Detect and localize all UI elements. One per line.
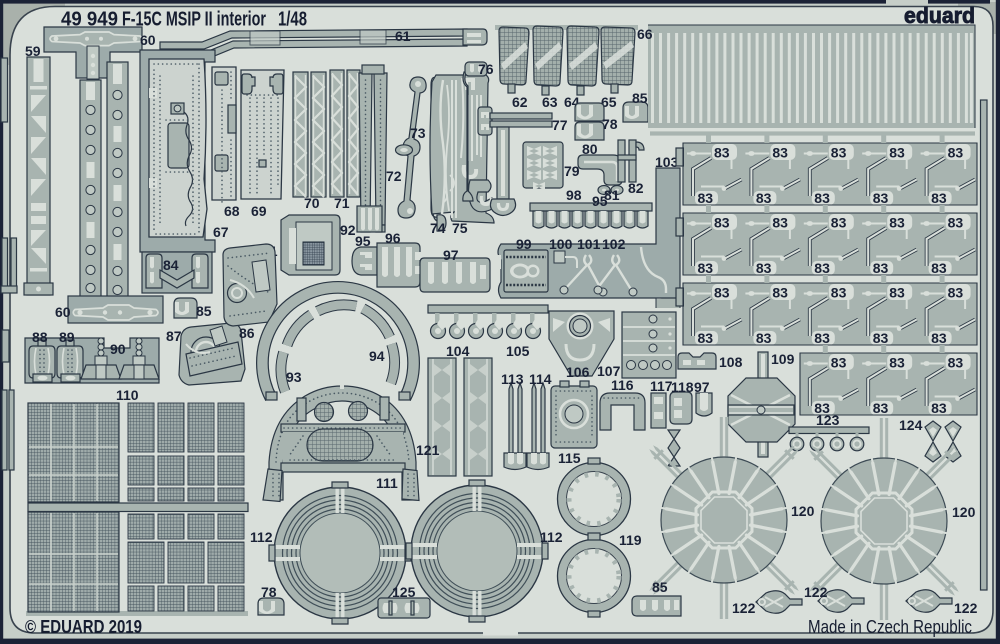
svg-text:102: 102 — [602, 236, 626, 252]
svg-text:60: 60 — [140, 32, 156, 48]
svg-text:69: 69 — [251, 203, 267, 219]
svg-text:105: 105 — [506, 343, 530, 359]
svg-text:76: 76 — [478, 61, 494, 77]
svg-text:111: 111 — [376, 475, 398, 491]
svg-text:Made in Czech Republic: Made in Czech Republic — [808, 617, 972, 637]
svg-text:106: 106 — [566, 364, 590, 380]
svg-text:92: 92 — [340, 222, 356, 238]
svg-text:72: 72 — [386, 168, 402, 184]
svg-text:82: 82 — [628, 180, 644, 196]
svg-text:122: 122 — [954, 600, 978, 616]
svg-text:115: 115 — [558, 450, 581, 466]
svg-text:121: 121 — [416, 442, 440, 458]
svg-text:123: 123 — [816, 412, 840, 428]
svg-text:98: 98 — [566, 187, 582, 203]
svg-text:80: 80 — [582, 141, 598, 157]
svg-text:77: 77 — [552, 117, 568, 133]
svg-text:85: 85 — [652, 579, 668, 595]
svg-text:79: 79 — [564, 163, 580, 179]
svg-text:94: 94 — [369, 348, 385, 364]
svg-text:71: 71 — [334, 195, 350, 211]
svg-text:78: 78 — [261, 584, 277, 600]
svg-text:114: 114 — [529, 371, 552, 387]
svg-text:112: 112 — [540, 529, 563, 545]
svg-text:67: 67 — [213, 224, 229, 240]
svg-text:120: 120 — [791, 503, 815, 519]
svg-text:86: 86 — [239, 325, 255, 341]
svg-text:95: 95 — [592, 193, 608, 209]
svg-text:113: 113 — [501, 371, 524, 387]
svg-text:75: 75 — [452, 220, 468, 236]
svg-text:104: 104 — [446, 343, 470, 359]
svg-text:eduard: eduard — [904, 3, 975, 28]
svg-text:95: 95 — [355, 233, 371, 249]
svg-text:96: 96 — [385, 230, 401, 246]
svg-text:61: 61 — [395, 28, 411, 44]
svg-text:89: 89 — [59, 329, 75, 345]
svg-text:99: 99 — [516, 236, 532, 252]
svg-text:© EDUARD 2019: © EDUARD 2019 — [25, 617, 142, 637]
svg-text:66: 66 — [637, 26, 653, 42]
svg-text:93: 93 — [286, 369, 302, 385]
svg-text:124: 124 — [899, 417, 923, 433]
svg-text:68: 68 — [224, 203, 240, 219]
svg-text:108: 108 — [719, 354, 743, 370]
svg-text:101: 101 — [577, 236, 601, 252]
svg-text:122: 122 — [732, 600, 756, 616]
svg-text:74: 74 — [430, 220, 446, 236]
svg-text:120: 120 — [952, 504, 976, 520]
svg-text:125: 125 — [392, 584, 416, 600]
svg-text:88: 88 — [32, 329, 48, 345]
svg-text:60: 60 — [55, 304, 71, 320]
svg-text:62: 62 — [512, 94, 528, 110]
svg-text:85: 85 — [632, 90, 648, 106]
svg-text:117: 117 — [650, 378, 673, 394]
svg-text:119: 119 — [619, 532, 642, 548]
svg-text:116: 116 — [611, 377, 634, 393]
svg-text:90: 90 — [110, 341, 126, 357]
svg-text:84: 84 — [163, 257, 179, 273]
svg-text:97: 97 — [694, 379, 710, 395]
svg-text:118: 118 — [671, 379, 694, 395]
svg-text:112: 112 — [250, 529, 273, 545]
svg-text:85: 85 — [196, 303, 212, 319]
svg-text:70: 70 — [304, 195, 320, 211]
svg-text:59: 59 — [25, 43, 41, 59]
svg-text:100: 100 — [549, 236, 573, 252]
svg-text:122: 122 — [804, 584, 828, 600]
svg-text:97: 97 — [443, 247, 459, 263]
svg-text:87: 87 — [166, 328, 182, 344]
svg-text:109: 109 — [771, 351, 795, 367]
svg-text:63: 63 — [542, 94, 558, 110]
svg-text:73: 73 — [410, 125, 426, 141]
svg-text:110: 110 — [116, 387, 139, 403]
svg-text:78: 78 — [602, 116, 618, 132]
